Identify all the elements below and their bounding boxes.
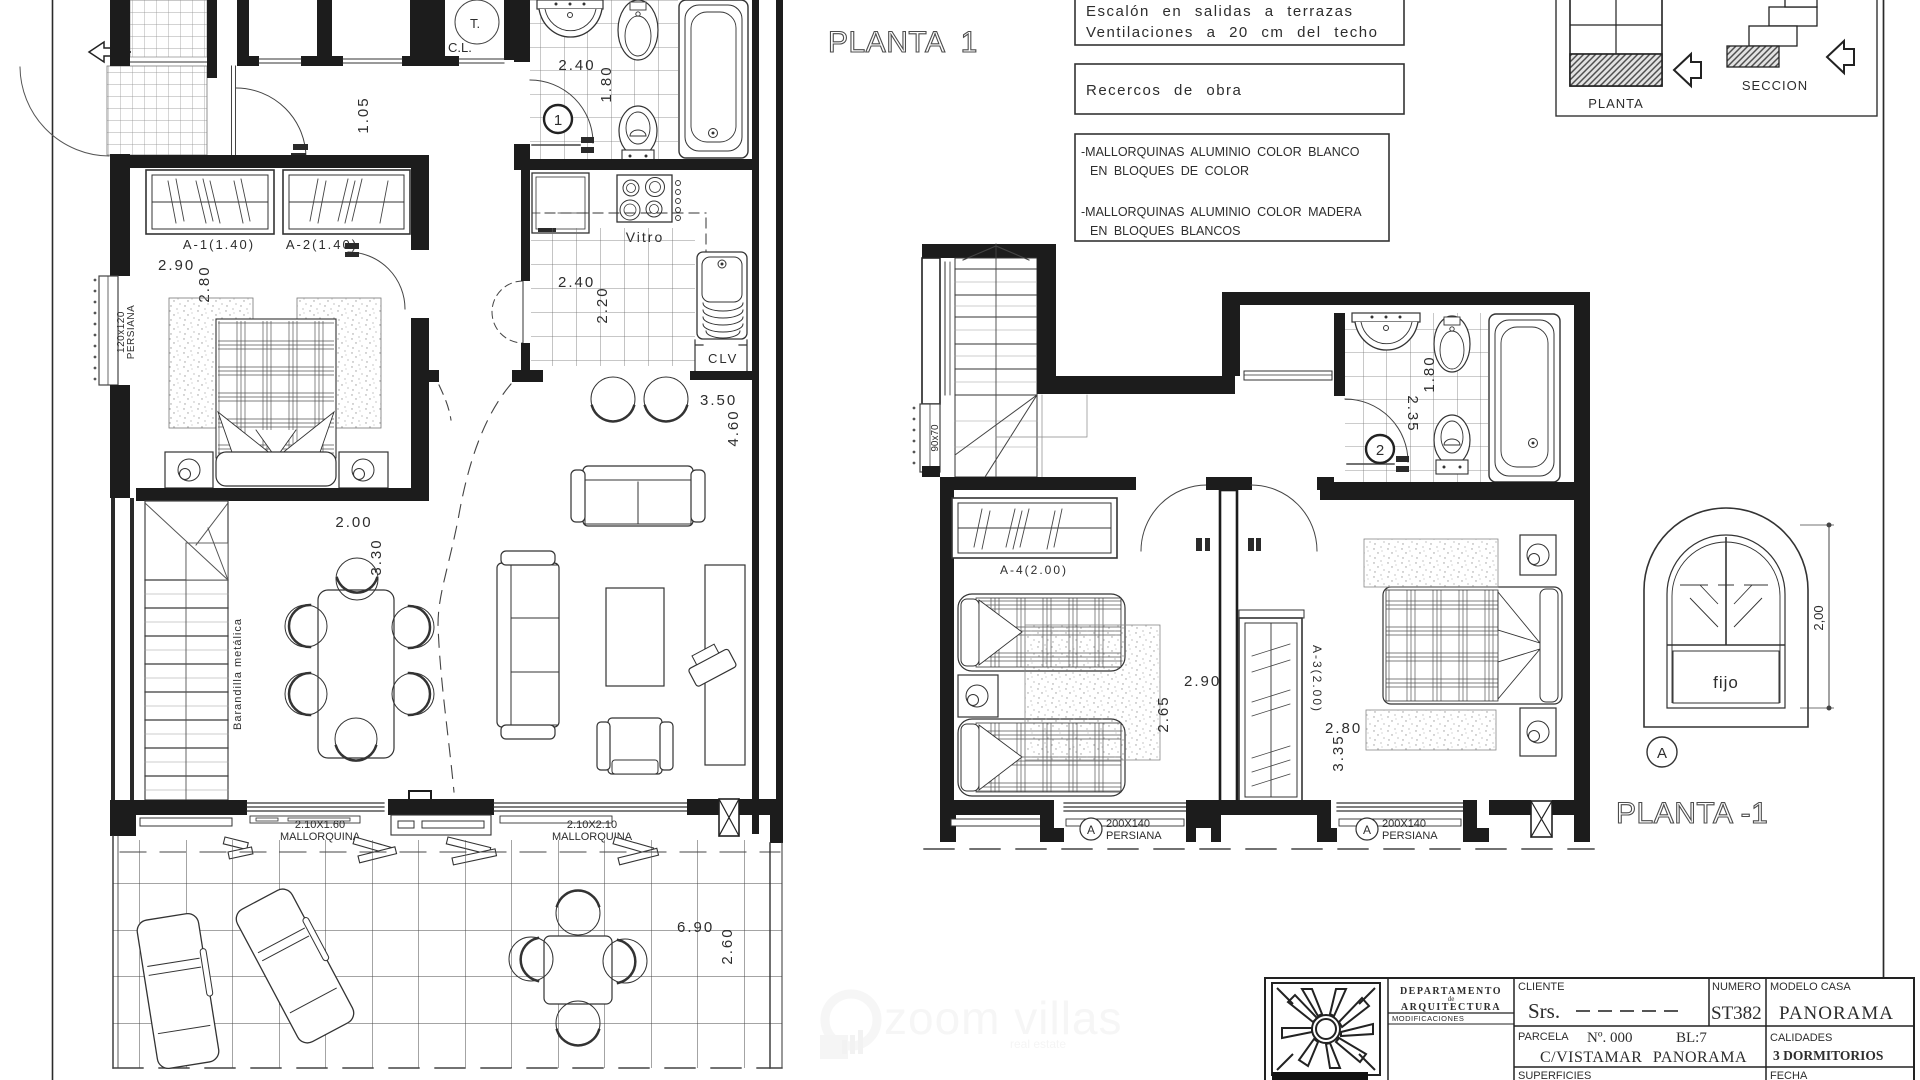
svg-text:1.80: 1.80: [598, 65, 615, 102]
svg-text:PERSIANA: PERSIANA: [126, 305, 137, 360]
svg-text:-MALLORQUINAS ALUMINIO COLOR: -MALLORQUINAS ALUMINIO COLOR BLANCO: [1081, 145, 1360, 159]
svg-text:SUPERFICIES: SUPERFICIES: [1518, 1070, 1591, 1080]
svg-text:A: A: [1087, 823, 1095, 837]
svg-text:PARCELA: PARCELA: [1518, 1031, 1569, 1043]
svg-text:PANORAMA: PANORAMA: [1779, 1003, 1894, 1024]
svg-text:2: 2: [1376, 442, 1384, 459]
svg-text:2.10X2.10: 2.10X2.10: [567, 819, 617, 831]
svg-text:PLANTA -1: PLANTA -1: [1616, 797, 1768, 830]
svg-text:3.35: 3.35: [1330, 734, 1347, 771]
svg-text:CLIENTE: CLIENTE: [1518, 981, 1564, 993]
svg-text:2.10X1.60: 2.10X1.60: [295, 819, 345, 831]
svg-text:A-1(1.40): A-1(1.40): [183, 237, 255, 252]
svg-text:A: A: [1363, 823, 1371, 837]
svg-text:3.50: 3.50: [700, 392, 737, 409]
svg-text:3 DORMITORIOS: 3 DORMITORIOS: [1773, 1048, 1883, 1063]
svg-text:Escalón en salidas a terrazas: Escalón en salidas a terrazas: [1086, 3, 1353, 20]
svg-text:EN BLOQUES BLANCOS: EN BLOQUES BLANCOS: [1090, 224, 1241, 238]
svg-text:2,00: 2,00: [1811, 605, 1826, 630]
svg-text:1: 1: [554, 112, 562, 129]
svg-text:SECCION: SECCION: [1742, 78, 1808, 93]
svg-text:2.35: 2.35: [1404, 395, 1421, 432]
svg-text:EN BLOQUES DE COLOR: EN BLOQUES DE COLOR: [1090, 164, 1249, 178]
svg-text:2.65: 2.65: [1155, 695, 1172, 732]
svg-text:2.90: 2.90: [1184, 673, 1221, 690]
svg-text:A-3(2.00): A-3(2.00): [1310, 645, 1324, 713]
svg-text:ST382: ST382: [1711, 1003, 1762, 1024]
svg-text:2.40: 2.40: [558, 57, 595, 74]
svg-text:200X140: 200X140: [1106, 818, 1150, 830]
svg-text:Barandilla metálica: Barandilla metálica: [232, 618, 244, 730]
svg-text:Nº. 000: Nº. 000: [1587, 1030, 1632, 1046]
svg-text:-MALLORQUINAS ALUMINIO COLOR: -MALLORQUINAS ALUMINIO COLOR MADERA: [1081, 205, 1362, 219]
svg-text:1.80: 1.80: [1421, 355, 1438, 392]
svg-text:NUMERO: NUMERO: [1712, 981, 1761, 993]
svg-text:2.60: 2.60: [719, 927, 736, 964]
svg-text:PLANTA: PLANTA: [1588, 96, 1644, 111]
svg-text:MODELO CASA: MODELO CASA: [1770, 981, 1851, 993]
svg-text:T.: T.: [470, 16, 480, 31]
svg-text:C/VISTAMAR PANORAMA: C/VISTAMAR PANORAMA: [1540, 1049, 1747, 1066]
svg-text:2.80: 2.80: [196, 265, 213, 302]
svg-text:PLANTA 1: PLANTA 1: [828, 26, 978, 59]
svg-text:2.00: 2.00: [335, 514, 372, 531]
svg-text:A: A: [1657, 745, 1667, 762]
svg-text:Ventilaciones a 20 cm del tech: Ventilaciones a 20 cm del techo: [1086, 24, 1378, 41]
svg-text:6.90: 6.90: [677, 919, 714, 936]
svg-text:A-4(2.00): A-4(2.00): [1000, 563, 1068, 577]
svg-text:C.L.: C.L.: [448, 40, 472, 55]
svg-text:1.05: 1.05: [355, 96, 372, 133]
svg-text:Recercos de obra: Recercos de obra: [1086, 82, 1242, 99]
svg-text:90x70: 90x70: [930, 424, 941, 452]
svg-text:zoom villas: zoom villas: [884, 992, 1123, 1044]
svg-text:2.40: 2.40: [558, 274, 595, 291]
svg-text:CLV: CLV: [708, 351, 738, 366]
svg-text:FECHA: FECHA: [1770, 1070, 1808, 1080]
svg-text:2.90: 2.90: [158, 257, 195, 274]
svg-text:4.60: 4.60: [725, 409, 742, 446]
svg-text:ARQUITECTURA: ARQUITECTURA: [1401, 1002, 1501, 1013]
svg-text:Srs.: Srs.: [1528, 999, 1560, 1023]
svg-text:BL:7: BL:7: [1676, 1030, 1707, 1046]
svg-text:200X140: 200X140: [1382, 818, 1426, 830]
svg-text:PERSIANA: PERSIANA: [1106, 830, 1162, 842]
svg-text:CALIDADES: CALIDADES: [1770, 1032, 1832, 1044]
svg-text:PERSIANA: PERSIANA: [1382, 830, 1438, 842]
svg-text:real estate: real estate: [1010, 1037, 1066, 1051]
svg-text:2.20: 2.20: [594, 286, 611, 323]
svg-text:fijo: fijo: [1713, 673, 1739, 692]
svg-text:MODIFICACIONES: MODIFICACIONES: [1392, 1014, 1464, 1023]
